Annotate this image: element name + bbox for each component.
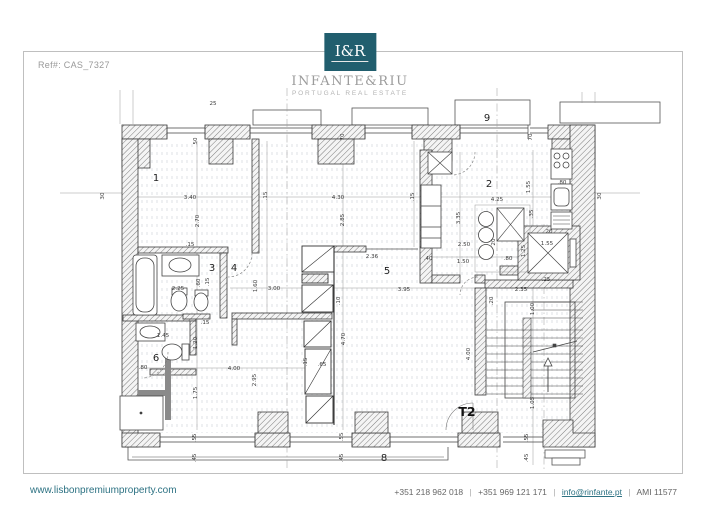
exit-step [552, 458, 580, 465]
dimension-label: .35 [529, 209, 535, 218]
sink-bowl [169, 258, 191, 272]
dimension-label: .25 [542, 277, 551, 283]
dimension-label: 4.00 [466, 347, 472, 360]
dimension-label: .45 [524, 453, 530, 462]
dimension-label: 3.00 [268, 286, 281, 292]
dimension-label: 3.40 [184, 195, 197, 201]
dimension-label: .55 [524, 433, 530, 442]
bottom-sill-band [128, 447, 448, 460]
dimension-label: .15 [263, 191, 269, 200]
window-sill [352, 108, 428, 125]
dimension-label: .55 [339, 432, 345, 441]
terrace-outline [560, 102, 660, 123]
kitchen-shelves [421, 185, 441, 248]
dimension-label: 70 [528, 133, 534, 141]
dimension-label: 1.00 [530, 302, 536, 315]
dimension-label: 20 [545, 229, 553, 235]
logo-monogram-square: I&R [324, 33, 376, 71]
logo-monogram: I&R [332, 42, 369, 62]
dimension-label: 3.35 [456, 211, 462, 224]
unit-type-label: T2 [458, 404, 475, 419]
dimension-label: 1.60 [253, 279, 259, 292]
dimension-label: .15 [201, 320, 210, 326]
separator: | [553, 487, 555, 497]
dimension-label: 1.75 [193, 386, 199, 399]
dimension-label: 3.95 [398, 287, 411, 293]
dimension-label: .15 [303, 357, 309, 366]
toilet [171, 291, 187, 311]
contact-line: +351 218 962 018 | +351 969 121 171 | in… [394, 487, 677, 497]
dishwasher [551, 212, 572, 229]
dimension-label: 1.55 [526, 180, 532, 193]
room-number: 2 [486, 179, 492, 190]
license-number: AMI 11577 [637, 487, 677, 497]
dimension-label: 70 [340, 133, 346, 141]
room-number: 1 [153, 173, 159, 184]
dimension-label: 2.50 [458, 242, 471, 248]
toilet [194, 293, 208, 311]
dimension-label: .65 [318, 362, 327, 368]
dimension-label: 1.25 [521, 244, 527, 257]
dimension-label: 2.70 [195, 214, 201, 227]
dimension-label: 2.25 [172, 286, 185, 292]
stove-burner [563, 162, 569, 168]
dimension-label: 4.25 [491, 197, 504, 203]
toilet-tank [182, 344, 189, 360]
stove-burner [554, 162, 560, 168]
dimension-label: 2.85 [340, 213, 346, 226]
dimension-label: .45 [192, 453, 198, 462]
dimension-label: .15 [186, 242, 195, 248]
dimension-label: .10 [336, 296, 342, 305]
dimension-label: 2.36 [366, 254, 379, 260]
dimension-label: .45 [339, 453, 345, 462]
dimension-label: .55 [192, 433, 198, 442]
hob-burner [479, 245, 494, 260]
elevator-door [570, 239, 576, 267]
exit-step [545, 450, 585, 458]
dimension-label: 20 [491, 238, 497, 246]
dimension-label: 30 [597, 192, 603, 200]
break-dot [553, 344, 556, 347]
dimension-label: 30 [100, 192, 106, 200]
stove-burner [563, 153, 569, 159]
dimension-label: 2.95 [252, 373, 258, 386]
dimension-label: 1.05 [530, 396, 536, 409]
bay-9 [455, 100, 530, 125]
room-number: 6 [153, 353, 159, 364]
dimension-label: 4.30 [332, 195, 345, 201]
phone-primary: +351 218 962 018 [394, 487, 463, 497]
bathtub-inner [136, 258, 154, 312]
company-logo: I&R INFANTE&RIU PORTUGAL REAL ESTATE [291, 33, 408, 97]
room-number: 3 [209, 263, 215, 274]
phone-secondary: +351 969 121 171 [478, 487, 547, 497]
room-number: 9 [484, 113, 490, 124]
closet-dot [140, 412, 142, 414]
toilet [162, 344, 182, 360]
website-link[interactable]: www.lisbonpremiumproperty.com [30, 485, 177, 496]
dimension-label: .20 [489, 296, 495, 305]
document-page: Ref#: CAS_7327 I&R INFANTE&RIU PORTUGAL … [0, 0, 705, 528]
dimension-label: 1.50 [457, 259, 470, 265]
dimension-label: 4.70 [341, 332, 347, 345]
dimension-label: .15 [205, 277, 211, 286]
dimension-label: .40 [424, 256, 433, 262]
room-number: 4 [231, 263, 237, 274]
dimension-label: 25 [209, 101, 217, 107]
dimension-label: 1.20 [193, 336, 199, 349]
dimension-label: .80 [504, 256, 513, 262]
company-name: INFANTE&RIU [291, 74, 408, 89]
dimension-label: .80 [139, 365, 148, 371]
dimension-label: 1.55 [541, 241, 554, 247]
separator: | [470, 487, 472, 497]
dimension-label: .60 [196, 278, 202, 287]
room-number: 5 [384, 266, 390, 277]
dimension-label: .80 [558, 180, 567, 186]
stove-burner [554, 153, 560, 159]
dimension-label: 1.45 [157, 333, 170, 339]
company-tagline: PORTUGAL REAL ESTATE [291, 90, 408, 97]
dimension-label: 2.35 [515, 287, 528, 293]
dimension-label: 50 [193, 137, 199, 145]
room-number: 8 [381, 453, 387, 464]
separator: | [628, 487, 630, 497]
hob-burner [479, 212, 494, 227]
kitchen-sink-bowl [554, 188, 569, 206]
dimension-label: .15 [410, 192, 416, 201]
dimension-label: 4.00 [228, 366, 241, 372]
email-link[interactable]: info@rinfante.pt [562, 487, 622, 497]
